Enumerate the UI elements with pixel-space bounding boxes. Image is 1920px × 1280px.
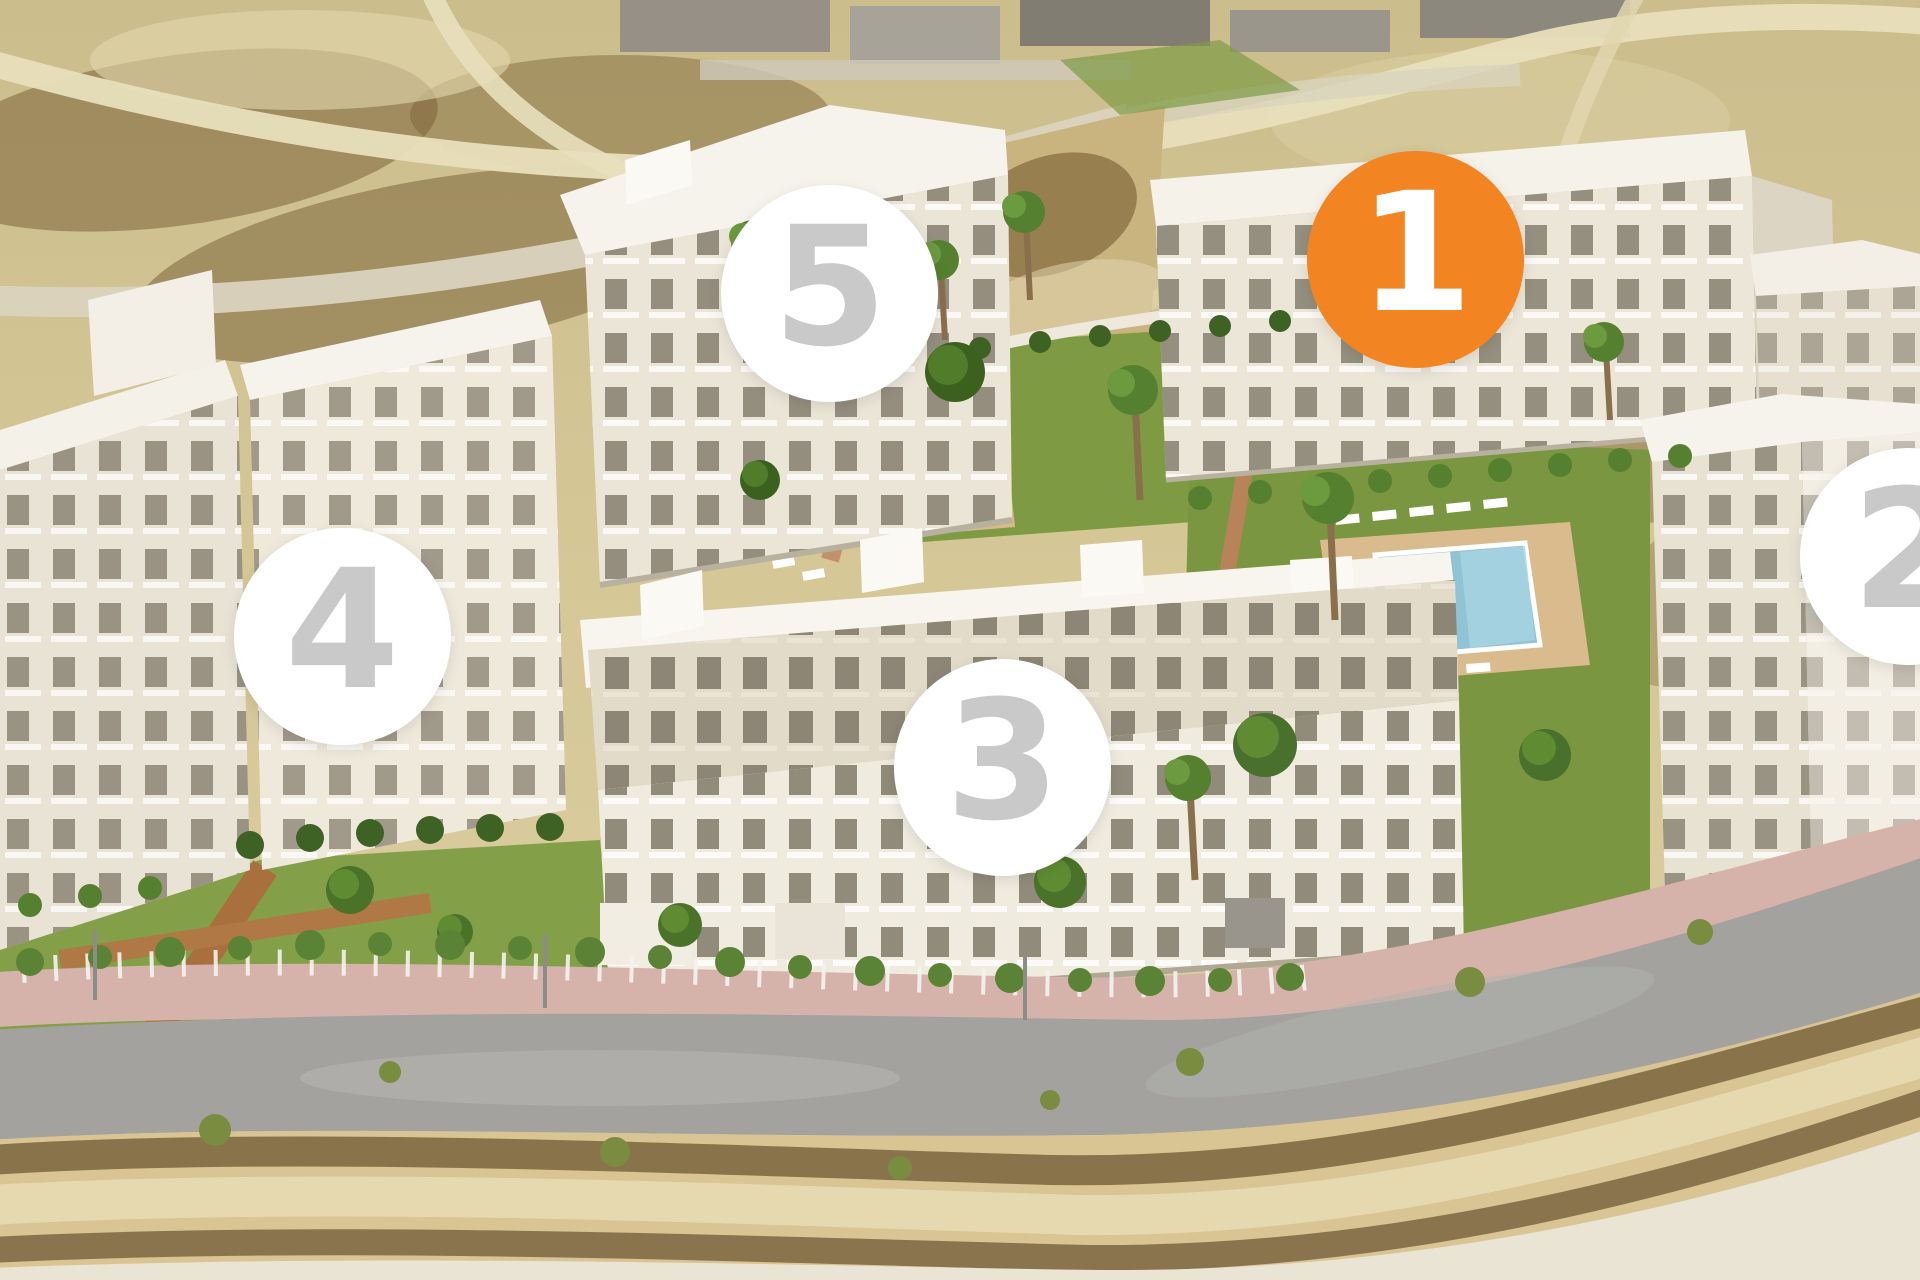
marker-building-2[interactable]: 2 (1800, 448, 1920, 665)
marker-label: 3 (945, 679, 1060, 844)
marker-label: 1 (1358, 171, 1473, 336)
marker-building-1[interactable]: 1 (1307, 151, 1524, 368)
marker-label: 4 (285, 548, 400, 713)
building-markers-layer: 12345 (0, 0, 1920, 1280)
marker-label: 5 (773, 205, 888, 370)
marker-building-5[interactable]: 5 (721, 185, 938, 402)
development-aerial-view: 12345 (0, 0, 1920, 1280)
marker-label: 2 (1852, 468, 1920, 633)
marker-building-4[interactable]: 4 (234, 528, 451, 745)
marker-building-3[interactable]: 3 (894, 659, 1111, 876)
